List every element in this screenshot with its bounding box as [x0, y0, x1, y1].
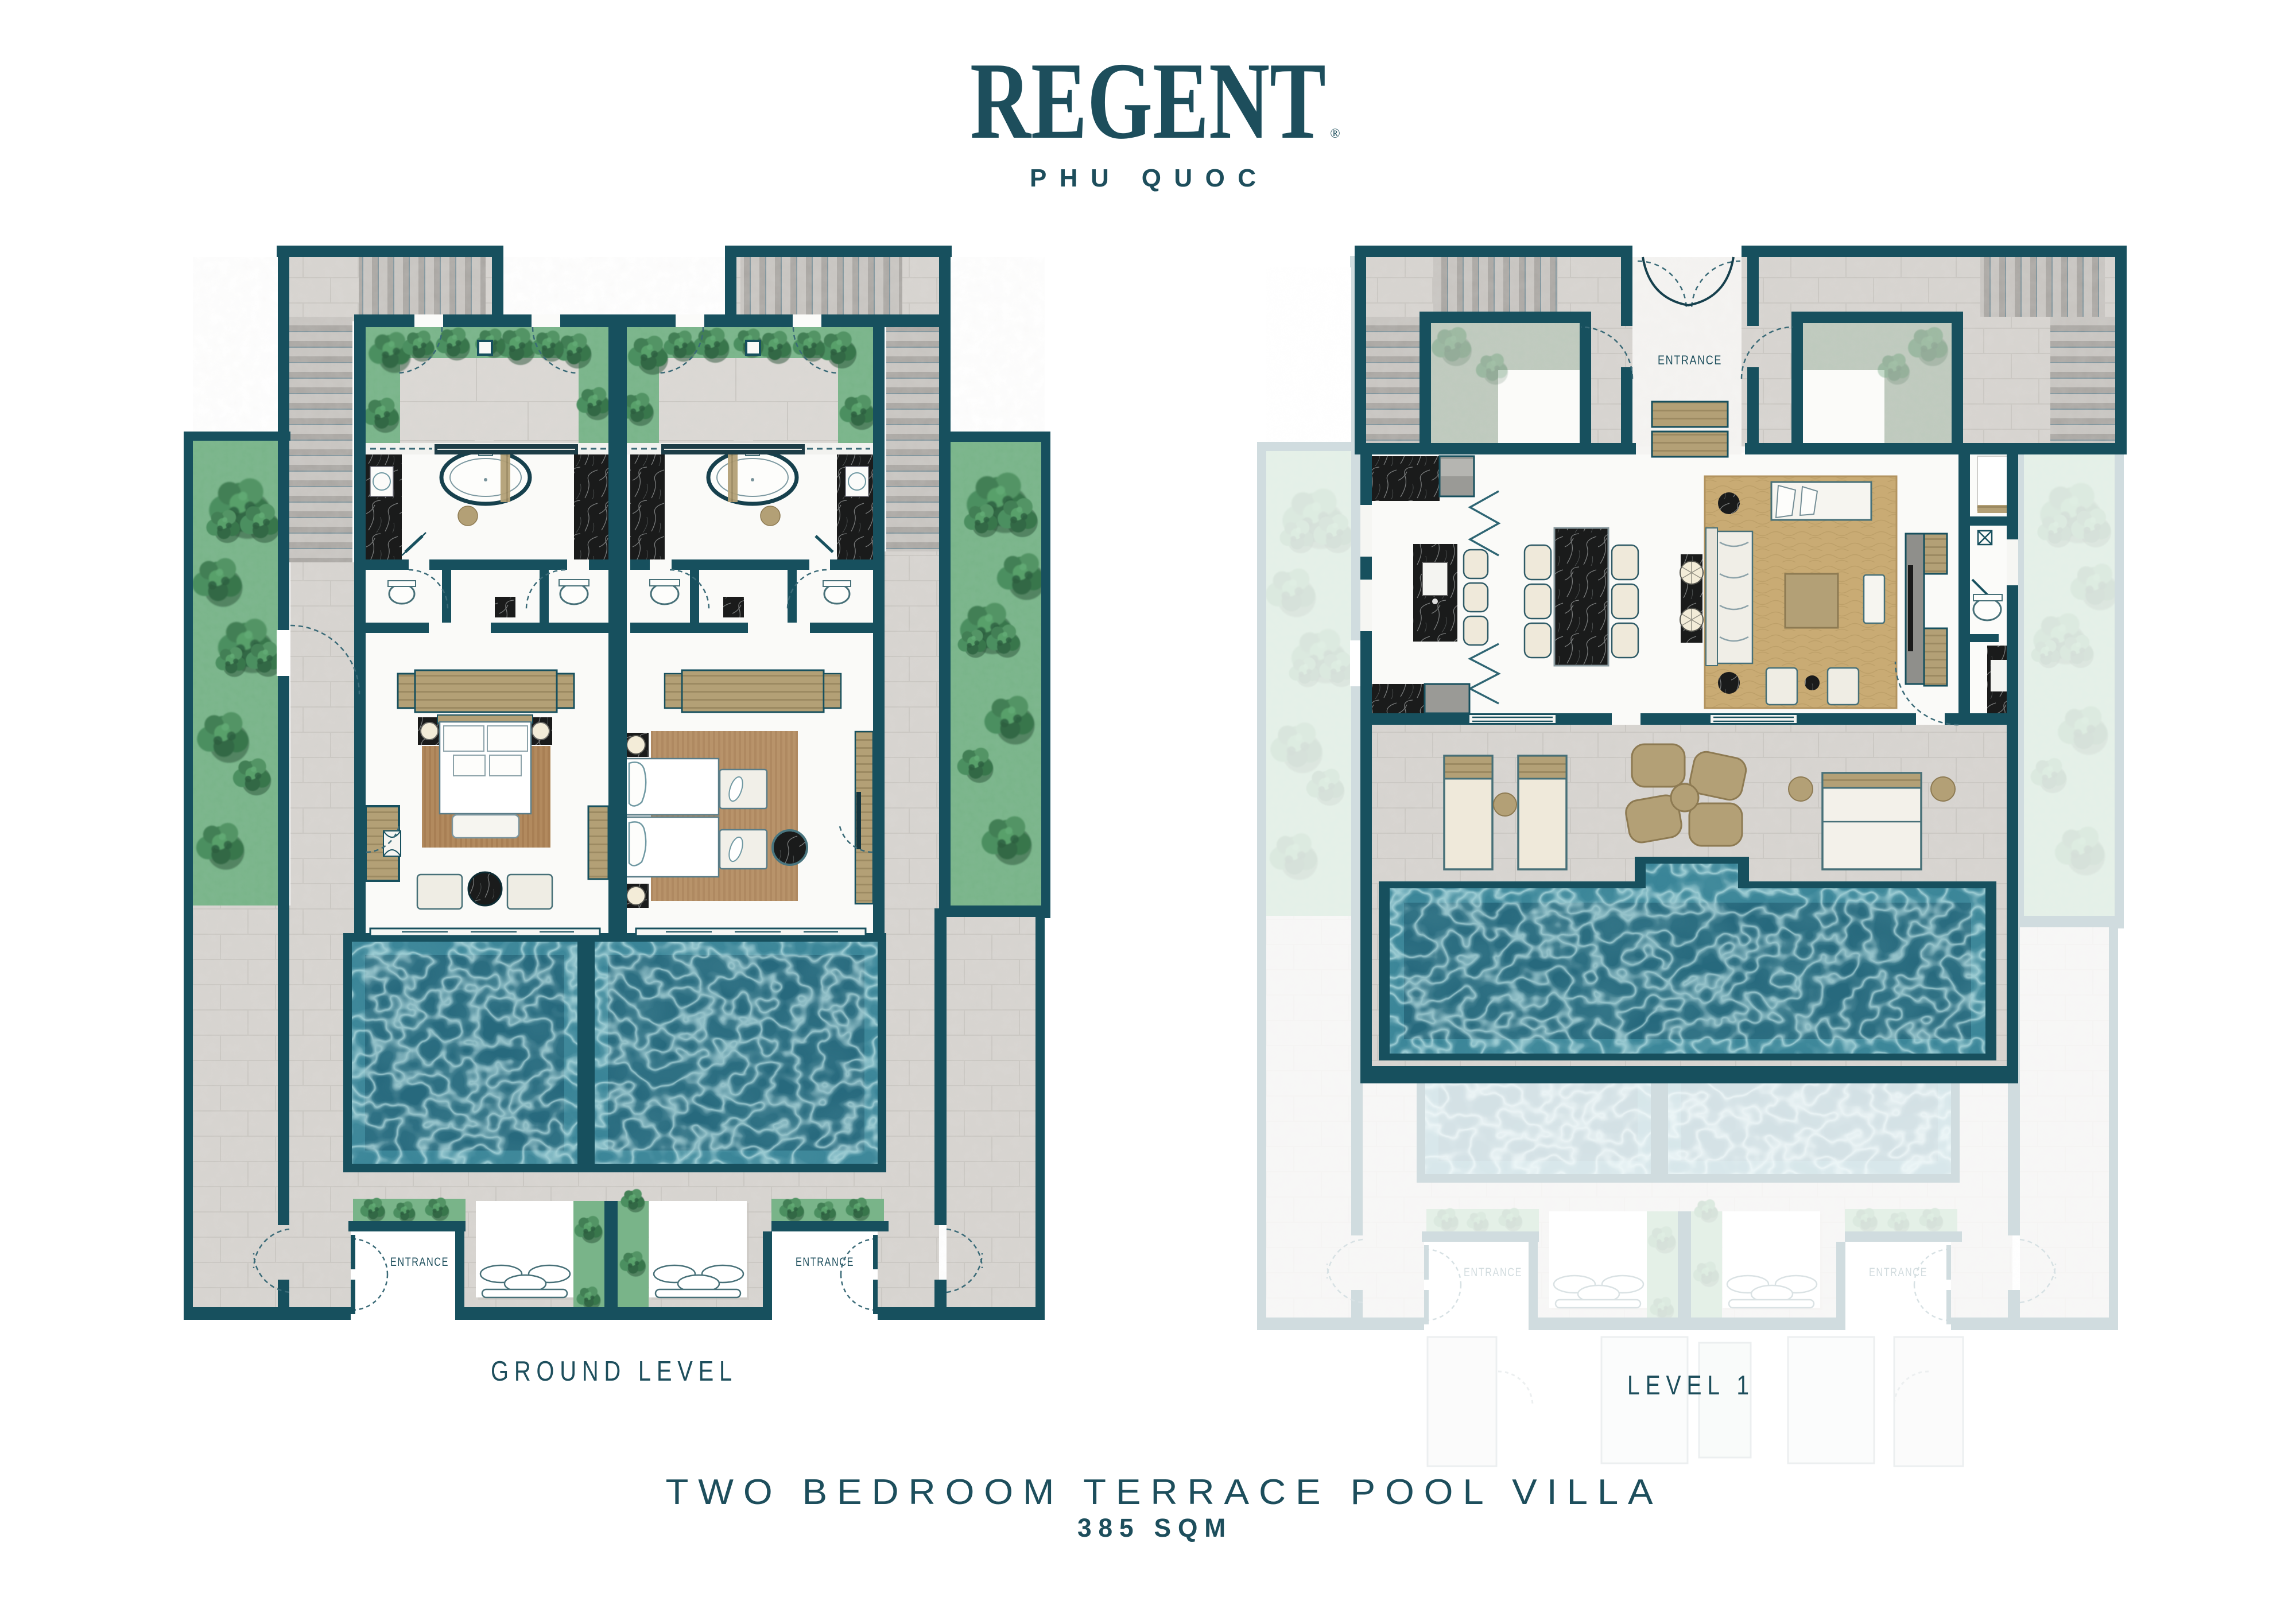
svg-text:ENTRANCE: ENTRANCE — [1658, 353, 1722, 367]
svg-text:PHU QUOC: PHU QUOC — [1030, 164, 1270, 192]
svg-text:REGENT: REGENT — [970, 40, 1326, 162]
svg-text:LEVEL 1: LEVEL 1 — [1627, 1370, 1755, 1400]
svg-text:TWO BEDROOM TERRACE POOL VILLA: TWO BEDROOM TERRACE POOL VILLA — [666, 1472, 1663, 1512]
svg-text:®: ® — [1330, 126, 1340, 141]
svg-text:ENTRANCE: ENTRANCE — [390, 1256, 449, 1269]
svg-text:385 SQM: 385 SQM — [1077, 1513, 1232, 1542]
svg-text:GROUND LEVEL: GROUND LEVEL — [491, 1356, 738, 1387]
